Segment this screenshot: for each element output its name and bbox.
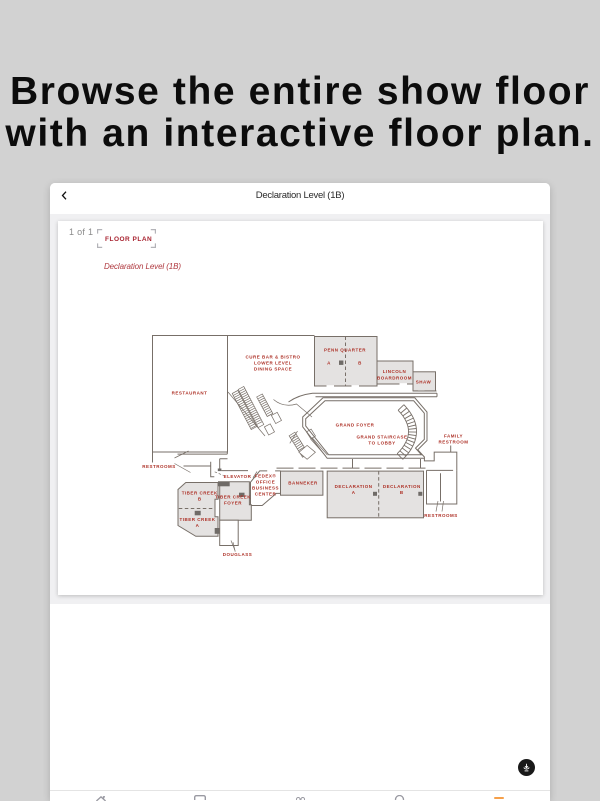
svg-text:BOARDROOM: BOARDROOM <box>377 376 412 381</box>
svg-text:DECLARATION: DECLARATION <box>383 484 421 489</box>
svg-text:FEDEX®: FEDEX® <box>255 473 277 479</box>
svg-text:B: B <box>358 361 362 366</box>
svg-text:A: A <box>352 490 356 495</box>
svg-text:B: B <box>400 490 404 495</box>
svg-text:FOYER: FOYER <box>224 501 242 506</box>
svg-text:OFFICE: OFFICE <box>256 480 276 485</box>
svg-text:BANNEKER: BANNEKER <box>288 481 318 486</box>
svg-text:TIBER CREEK: TIBER CREEK <box>179 517 215 522</box>
svg-text:RESTROOMS: RESTROOMS <box>424 513 458 518</box>
svg-text:RESTROOMS: RESTROOMS <box>142 464 176 469</box>
svg-text:LINCOLN: LINCOLN <box>383 369 407 374</box>
svg-text:GRAND STAIRCASE: GRAND STAIRCASE <box>357 434 408 439</box>
svg-text:BUSINESS: BUSINESS <box>252 486 279 491</box>
svg-text:GRAND FOYER: GRAND FOYER <box>336 423 375 428</box>
svg-text:A: A <box>327 361 331 366</box>
svg-text:CURE BAR & BISTRO: CURE BAR & BISTRO <box>245 355 300 360</box>
svg-text:RESTAURANT: RESTAURANT <box>172 390 208 395</box>
svg-text:DINING SPACE: DINING SPACE <box>254 367 292 372</box>
svg-text:TIBER CREEK: TIBER CREEK <box>215 495 251 500</box>
svg-text:PENN QUARTER: PENN QUARTER <box>324 348 366 353</box>
svg-text:CENTER: CENTER <box>255 492 277 497</box>
svg-text:DOUGLASS: DOUGLASS <box>223 552 253 557</box>
svg-text:B: B <box>198 497 202 502</box>
svg-text:RESTROOM: RESTROOM <box>438 440 468 445</box>
svg-text:LOWER LEVEL: LOWER LEVEL <box>254 361 292 366</box>
svg-text:DECLARATION: DECLARATION <box>335 484 373 489</box>
svg-text:FAMILY: FAMILY <box>444 434 463 439</box>
svg-text:SHAW: SHAW <box>416 380 432 385</box>
svg-text:TIBER CREEK: TIBER CREEK <box>182 491 218 496</box>
svg-text:ELEVATOR: ELEVATOR <box>224 474 252 479</box>
svg-text:TO LOBBY: TO LOBBY <box>368 441 395 446</box>
svg-text:A: A <box>196 523 200 528</box>
